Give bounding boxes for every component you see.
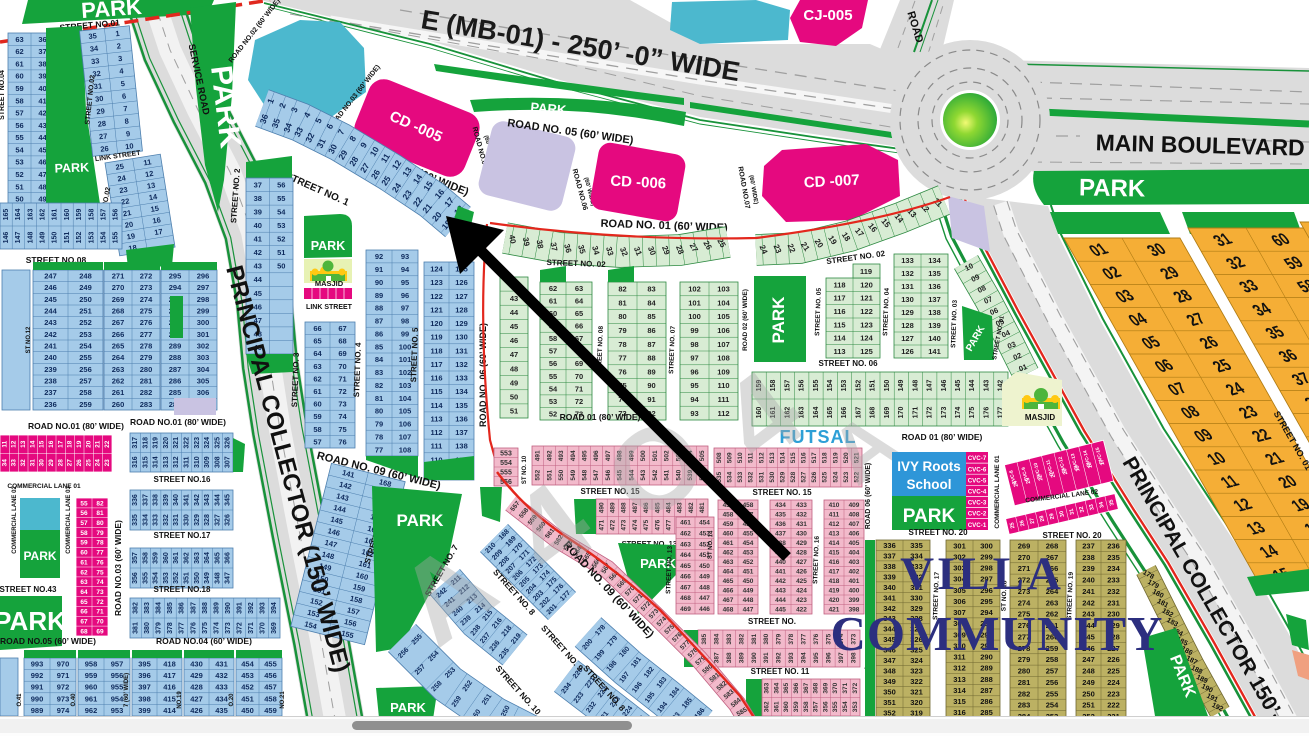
svg-text:224: 224 bbox=[1107, 678, 1120, 687]
svg-text:CD -007: CD -007 bbox=[803, 172, 860, 192]
svg-text:286: 286 bbox=[980, 697, 993, 706]
svg-text:11: 11 bbox=[143, 157, 152, 167]
svg-text:409: 409 bbox=[849, 502, 860, 509]
svg-text:320: 320 bbox=[163, 437, 170, 449]
svg-text:395: 395 bbox=[813, 652, 820, 663]
svg-text:436: 436 bbox=[775, 521, 786, 528]
svg-text:63: 63 bbox=[15, 35, 23, 44]
svg-text:264: 264 bbox=[112, 353, 125, 362]
svg-text:121: 121 bbox=[860, 294, 873, 303]
svg-text:20: 20 bbox=[124, 220, 134, 230]
svg-text:37: 37 bbox=[254, 181, 262, 190]
svg-text:424: 424 bbox=[796, 588, 807, 595]
svg-text:129: 129 bbox=[901, 308, 914, 317]
svg-text:53: 53 bbox=[549, 397, 557, 406]
svg-text:448: 448 bbox=[699, 584, 710, 591]
svg-text:971: 971 bbox=[57, 671, 70, 680]
svg-text:127: 127 bbox=[455, 292, 468, 301]
svg-text:144: 144 bbox=[969, 380, 976, 392]
svg-text:310: 310 bbox=[194, 456, 201, 468]
svg-text:65: 65 bbox=[575, 309, 583, 318]
svg-text:450: 450 bbox=[241, 706, 254, 715]
svg-text:176: 176 bbox=[984, 407, 991, 419]
svg-text:461: 461 bbox=[723, 540, 734, 547]
svg-text:237: 237 bbox=[44, 388, 57, 397]
svg-text:316: 316 bbox=[132, 456, 139, 468]
svg-text:136: 136 bbox=[455, 414, 468, 423]
svg-text:49: 49 bbox=[38, 195, 46, 204]
svg-text:88: 88 bbox=[647, 354, 655, 363]
svg-text:335: 335 bbox=[132, 514, 139, 526]
svg-text:104: 104 bbox=[399, 394, 412, 403]
svg-text:376: 376 bbox=[813, 633, 820, 644]
svg-text:77: 77 bbox=[96, 550, 104, 557]
svg-text:241: 241 bbox=[1082, 587, 1095, 596]
svg-text:74: 74 bbox=[338, 412, 347, 421]
svg-text:151: 151 bbox=[870, 380, 877, 392]
svg-text:240: 240 bbox=[44, 353, 57, 362]
svg-text:399: 399 bbox=[138, 706, 151, 715]
svg-text:270: 270 bbox=[112, 283, 125, 292]
svg-text:434: 434 bbox=[775, 502, 786, 509]
svg-text:138: 138 bbox=[928, 308, 941, 317]
svg-text:40: 40 bbox=[254, 221, 262, 230]
svg-text:268: 268 bbox=[112, 307, 125, 316]
svg-text:70: 70 bbox=[96, 619, 104, 626]
svg-text:349: 349 bbox=[883, 677, 896, 686]
svg-text:326: 326 bbox=[225, 514, 232, 526]
svg-text:105: 105 bbox=[717, 312, 730, 321]
svg-text:12: 12 bbox=[144, 169, 154, 179]
svg-text:303: 303 bbox=[197, 353, 210, 362]
svg-text:469: 469 bbox=[680, 606, 691, 613]
svg-text:462: 462 bbox=[723, 550, 734, 557]
svg-text:467: 467 bbox=[723, 597, 734, 604]
svg-text:80: 80 bbox=[375, 407, 383, 416]
svg-text:375: 375 bbox=[202, 622, 209, 634]
svg-text:365: 365 bbox=[214, 552, 221, 564]
svg-text:131: 131 bbox=[901, 282, 914, 291]
svg-text:336: 336 bbox=[883, 541, 896, 550]
svg-text:77: 77 bbox=[375, 445, 383, 454]
svg-text:403: 403 bbox=[849, 559, 860, 566]
svg-text:384: 384 bbox=[713, 633, 720, 644]
svg-text:124: 124 bbox=[860, 334, 873, 343]
svg-text:382: 382 bbox=[133, 602, 140, 614]
svg-text:356: 356 bbox=[132, 572, 139, 584]
svg-text:ROAD 01 (80’ WIDE): ROAD 01 (80’ WIDE) bbox=[902, 432, 983, 442]
svg-text:30: 30 bbox=[95, 94, 104, 104]
svg-text:450: 450 bbox=[699, 563, 710, 570]
svg-text:105: 105 bbox=[399, 407, 412, 416]
svg-text:388: 388 bbox=[726, 652, 733, 663]
svg-text:524: 524 bbox=[832, 471, 839, 482]
svg-text:21: 21 bbox=[122, 208, 132, 218]
svg-text:308: 308 bbox=[214, 456, 221, 468]
svg-text:79: 79 bbox=[618, 326, 626, 335]
svg-text:386: 386 bbox=[179, 602, 186, 614]
svg-text:459: 459 bbox=[723, 521, 734, 528]
svg-text:362: 362 bbox=[184, 552, 191, 564]
svg-text:415: 415 bbox=[829, 550, 840, 557]
svg-text:ROAD 02 (60’ WIDE): ROAD 02 (60’ WIDE) bbox=[742, 289, 749, 351]
svg-text:433: 433 bbox=[215, 683, 228, 692]
svg-text:359: 359 bbox=[793, 701, 800, 712]
svg-text:59: 59 bbox=[313, 412, 321, 421]
svg-text:29: 29 bbox=[48, 459, 55, 467]
svg-text:19: 19 bbox=[126, 231, 136, 241]
svg-text:261: 261 bbox=[112, 388, 125, 397]
svg-text:309: 309 bbox=[204, 456, 211, 468]
svg-text:32: 32 bbox=[20, 459, 27, 467]
svg-text:265: 265 bbox=[112, 342, 125, 351]
svg-text:70: 70 bbox=[575, 372, 583, 381]
svg-text:62: 62 bbox=[549, 284, 557, 293]
svg-text:337: 337 bbox=[883, 551, 896, 560]
svg-text:339: 339 bbox=[883, 572, 896, 581]
svg-text:326: 326 bbox=[225, 437, 232, 449]
svg-text:28: 28 bbox=[57, 459, 64, 467]
svg-text:44: 44 bbox=[254, 275, 263, 284]
svg-text:38: 38 bbox=[254, 194, 262, 203]
svg-text:87: 87 bbox=[375, 317, 383, 326]
svg-text:13: 13 bbox=[146, 181, 156, 191]
svg-text:391: 391 bbox=[763, 652, 770, 663]
svg-text:278: 278 bbox=[140, 342, 153, 351]
svg-text:989: 989 bbox=[31, 706, 44, 715]
svg-text:117: 117 bbox=[833, 294, 845, 303]
svg-text:383: 383 bbox=[144, 602, 151, 614]
svg-text:281: 281 bbox=[140, 377, 153, 386]
svg-text:61: 61 bbox=[313, 387, 321, 396]
svg-text:67: 67 bbox=[80, 619, 88, 626]
svg-text:135: 135 bbox=[455, 401, 468, 410]
svg-text:432: 432 bbox=[796, 512, 807, 519]
svg-text:956: 956 bbox=[111, 671, 124, 680]
svg-text:34: 34 bbox=[1, 459, 8, 467]
svg-text:106: 106 bbox=[399, 420, 412, 429]
svg-text:56: 56 bbox=[15, 121, 23, 130]
svg-text:82: 82 bbox=[96, 500, 104, 507]
svg-text:340: 340 bbox=[173, 494, 180, 506]
svg-text:58: 58 bbox=[313, 425, 321, 434]
svg-text:239: 239 bbox=[1082, 564, 1095, 573]
svg-text:143: 143 bbox=[984, 380, 991, 392]
svg-text:123: 123 bbox=[430, 278, 443, 287]
svg-text:ST NO. 14: ST NO. 14 bbox=[708, 530, 715, 559]
svg-text:46: 46 bbox=[510, 336, 518, 345]
svg-text:458: 458 bbox=[723, 512, 734, 519]
svg-text:302: 302 bbox=[197, 342, 210, 351]
svg-text:418: 418 bbox=[163, 660, 176, 669]
svg-text:52: 52 bbox=[277, 235, 285, 244]
svg-text:66: 66 bbox=[313, 324, 321, 333]
svg-text:128: 128 bbox=[455, 305, 468, 314]
svg-text:276: 276 bbox=[140, 318, 153, 327]
svg-text:132: 132 bbox=[455, 360, 468, 369]
svg-text:133: 133 bbox=[901, 256, 914, 265]
svg-text:325: 325 bbox=[214, 437, 221, 449]
svg-text:64: 64 bbox=[313, 349, 322, 358]
svg-text:363: 363 bbox=[764, 682, 771, 693]
svg-text:38: 38 bbox=[38, 59, 46, 68]
svg-text:553: 553 bbox=[500, 450, 512, 457]
svg-text:150: 150 bbox=[52, 232, 59, 244]
svg-text:321: 321 bbox=[173, 437, 180, 449]
svg-text:31: 31 bbox=[29, 459, 36, 467]
svg-text:21: 21 bbox=[95, 440, 102, 448]
svg-text:355: 355 bbox=[142, 572, 149, 584]
svg-text:82: 82 bbox=[618, 285, 626, 294]
svg-text:331: 331 bbox=[173, 514, 180, 526]
svg-text:147: 147 bbox=[15, 232, 22, 244]
svg-text:343: 343 bbox=[204, 494, 211, 506]
svg-text:348: 348 bbox=[214, 572, 221, 584]
svg-text:154: 154 bbox=[827, 380, 834, 392]
svg-text:379: 379 bbox=[156, 622, 163, 634]
svg-text:124: 124 bbox=[430, 265, 443, 274]
svg-text:428: 428 bbox=[190, 683, 203, 692]
svg-text:MAIN BOULEVARD: MAIN BOULEVARD bbox=[1095, 129, 1305, 160]
svg-text:44: 44 bbox=[510, 308, 519, 317]
svg-text:150: 150 bbox=[884, 380, 891, 392]
svg-text:STREET NO. 5: STREET NO. 5 bbox=[409, 327, 420, 383]
svg-text:76: 76 bbox=[338, 437, 346, 446]
svg-text:17: 17 bbox=[154, 227, 164, 237]
svg-text:120: 120 bbox=[860, 280, 873, 289]
svg-text:247: 247 bbox=[44, 272, 57, 281]
svg-text:338: 338 bbox=[883, 562, 896, 571]
svg-text:71: 71 bbox=[575, 384, 583, 393]
svg-text:474: 474 bbox=[632, 519, 639, 530]
svg-text:462: 462 bbox=[680, 531, 691, 538]
svg-text:123: 123 bbox=[860, 320, 873, 329]
svg-text:317: 317 bbox=[132, 437, 139, 449]
svg-text:392: 392 bbox=[248, 602, 255, 614]
svg-text:427: 427 bbox=[796, 559, 807, 566]
svg-text:254: 254 bbox=[1046, 701, 1059, 710]
svg-text:411: 411 bbox=[829, 512, 840, 519]
svg-text:240: 240 bbox=[1082, 576, 1095, 585]
svg-text:371: 371 bbox=[248, 622, 255, 634]
svg-text:354: 354 bbox=[153, 572, 160, 584]
svg-text:50: 50 bbox=[277, 262, 285, 271]
svg-text:STREET NO. 3: STREET NO. 3 bbox=[290, 352, 301, 408]
svg-text:114: 114 bbox=[430, 401, 443, 410]
svg-text:27: 27 bbox=[99, 131, 108, 141]
svg-text:509: 509 bbox=[727, 452, 734, 463]
svg-text:149: 149 bbox=[40, 232, 47, 244]
svg-text:378: 378 bbox=[167, 622, 174, 634]
svg-text:274: 274 bbox=[140, 295, 153, 304]
svg-text:62: 62 bbox=[80, 569, 88, 576]
svg-text:957: 957 bbox=[111, 660, 124, 669]
svg-text:93: 93 bbox=[690, 409, 698, 418]
svg-text:494: 494 bbox=[570, 450, 577, 461]
svg-text:433: 433 bbox=[796, 502, 807, 509]
svg-text:56: 56 bbox=[80, 510, 88, 517]
svg-text:39: 39 bbox=[38, 72, 46, 81]
svg-text:322: 322 bbox=[910, 677, 923, 686]
svg-text:285: 285 bbox=[169, 388, 182, 397]
svg-text:146: 146 bbox=[3, 232, 10, 244]
svg-text:100: 100 bbox=[688, 312, 701, 321]
svg-text:250: 250 bbox=[79, 295, 92, 304]
svg-text:ROAD NO.04 (60’ WIDE): ROAD NO.04 (60’ WIDE) bbox=[156, 636, 252, 646]
svg-text:300: 300 bbox=[197, 318, 210, 327]
svg-text:381: 381 bbox=[133, 622, 140, 634]
svg-text:427: 427 bbox=[190, 694, 203, 703]
svg-text:955: 955 bbox=[111, 683, 124, 692]
svg-text:COMMERCIAL LANE 02: COMMERCIAL LANE 02 bbox=[12, 486, 18, 554]
svg-text:163: 163 bbox=[27, 209, 34, 221]
svg-text:238: 238 bbox=[44, 377, 57, 386]
svg-text:342: 342 bbox=[194, 494, 201, 506]
svg-text:493: 493 bbox=[558, 450, 565, 461]
svg-text:366: 366 bbox=[225, 552, 232, 564]
svg-text:153: 153 bbox=[841, 380, 848, 392]
svg-text:PARK: PARK bbox=[0, 606, 66, 636]
svg-text:158: 158 bbox=[88, 209, 95, 221]
svg-text:334: 334 bbox=[142, 514, 149, 526]
svg-text:280: 280 bbox=[140, 365, 153, 374]
svg-text:65: 65 bbox=[313, 337, 321, 346]
svg-text:360: 360 bbox=[163, 552, 170, 564]
svg-text:51: 51 bbox=[15, 182, 23, 191]
svg-text:534: 534 bbox=[727, 471, 734, 482]
svg-text:233: 233 bbox=[1107, 576, 1120, 585]
svg-text:349: 349 bbox=[204, 572, 211, 584]
svg-text:CJ-005: CJ-005 bbox=[803, 7, 852, 24]
svg-text:555: 555 bbox=[500, 469, 512, 476]
svg-text:89: 89 bbox=[647, 367, 655, 376]
svg-text:314: 314 bbox=[953, 686, 966, 695]
svg-text:288: 288 bbox=[169, 353, 182, 362]
svg-text:73: 73 bbox=[96, 589, 104, 596]
svg-text:471: 471 bbox=[598, 519, 605, 530]
svg-text:43: 43 bbox=[38, 121, 46, 130]
svg-text:466: 466 bbox=[680, 574, 691, 581]
svg-text:118: 118 bbox=[833, 280, 845, 289]
svg-text:283: 283 bbox=[1018, 701, 1031, 710]
svg-text:992: 992 bbox=[31, 671, 44, 680]
svg-text:449: 449 bbox=[743, 588, 754, 595]
svg-text:333: 333 bbox=[153, 514, 160, 526]
svg-text:425: 425 bbox=[796, 578, 807, 585]
svg-text:71: 71 bbox=[96, 609, 104, 616]
svg-text:O.40: O.40 bbox=[71, 693, 77, 707]
svg-text:MASJID: MASJID bbox=[1025, 413, 1055, 422]
svg-text:252: 252 bbox=[79, 318, 92, 327]
svg-text:77: 77 bbox=[618, 354, 626, 363]
svg-text:990: 990 bbox=[31, 694, 44, 703]
svg-text:347: 347 bbox=[225, 572, 232, 584]
svg-text:382: 382 bbox=[738, 633, 745, 644]
svg-text:394: 394 bbox=[271, 602, 278, 614]
svg-text:389: 389 bbox=[738, 652, 745, 663]
svg-text:453: 453 bbox=[241, 671, 254, 680]
svg-text:422: 422 bbox=[796, 607, 807, 614]
svg-text:137: 137 bbox=[455, 428, 468, 437]
svg-text:90: 90 bbox=[375, 278, 383, 287]
svg-text:298: 298 bbox=[197, 295, 210, 304]
svg-text:420: 420 bbox=[829, 597, 840, 604]
svg-text:391: 391 bbox=[236, 602, 243, 614]
svg-text:17: 17 bbox=[57, 440, 64, 448]
svg-text:128: 128 bbox=[901, 321, 914, 330]
svg-text:PARK: PARK bbox=[1079, 174, 1146, 202]
svg-text:448: 448 bbox=[743, 597, 754, 604]
svg-text:360: 360 bbox=[783, 701, 790, 712]
svg-text:107: 107 bbox=[399, 432, 412, 441]
svg-text:973: 973 bbox=[57, 694, 70, 703]
svg-text:369: 369 bbox=[822, 682, 829, 693]
svg-text:222: 222 bbox=[1107, 701, 1120, 710]
svg-text:22: 22 bbox=[104, 440, 111, 448]
svg-text:82: 82 bbox=[375, 381, 383, 390]
svg-text:56: 56 bbox=[549, 359, 557, 368]
svg-text:173: 173 bbox=[941, 407, 948, 419]
svg-text:69: 69 bbox=[338, 349, 346, 358]
svg-text:129: 129 bbox=[455, 319, 468, 328]
svg-text:451: 451 bbox=[241, 694, 254, 703]
svg-text:318: 318 bbox=[142, 437, 149, 449]
svg-text:434: 434 bbox=[215, 694, 228, 703]
svg-text:429: 429 bbox=[190, 671, 203, 680]
svg-text:410: 410 bbox=[829, 502, 840, 509]
svg-text:363: 363 bbox=[194, 552, 201, 564]
svg-text:STREET NO.18: STREET NO.18 bbox=[154, 585, 211, 594]
svg-text:24: 24 bbox=[95, 459, 102, 467]
svg-text:172: 172 bbox=[927, 407, 934, 419]
svg-text:972: 972 bbox=[57, 683, 70, 692]
svg-text:251: 251 bbox=[1082, 701, 1095, 710]
svg-text:45: 45 bbox=[510, 322, 518, 331]
svg-text:341: 341 bbox=[184, 494, 191, 506]
svg-text:405: 405 bbox=[849, 540, 860, 547]
svg-text:288: 288 bbox=[980, 675, 993, 684]
svg-text:430: 430 bbox=[796, 531, 807, 538]
svg-text:75: 75 bbox=[338, 425, 346, 434]
svg-text:455: 455 bbox=[264, 660, 277, 669]
svg-text:374: 374 bbox=[213, 622, 220, 634]
svg-text:169: 169 bbox=[884, 407, 891, 419]
svg-text:54: 54 bbox=[15, 145, 24, 154]
svg-text:98: 98 bbox=[401, 317, 409, 326]
svg-text:47: 47 bbox=[510, 350, 518, 359]
svg-text:407: 407 bbox=[849, 521, 860, 528]
svg-text:467: 467 bbox=[680, 584, 691, 591]
svg-text:26: 26 bbox=[76, 459, 83, 467]
svg-text:533: 533 bbox=[737, 471, 744, 482]
svg-text:95: 95 bbox=[401, 278, 409, 287]
svg-text:232: 232 bbox=[1107, 587, 1120, 596]
svg-text:356: 356 bbox=[822, 701, 829, 712]
svg-text:455: 455 bbox=[743, 531, 754, 538]
svg-text:162: 162 bbox=[40, 209, 47, 221]
svg-text:463: 463 bbox=[723, 559, 734, 566]
svg-text:254: 254 bbox=[79, 342, 92, 351]
svg-text:225: 225 bbox=[1107, 667, 1120, 676]
svg-text:223: 223 bbox=[1107, 689, 1120, 698]
svg-text:397: 397 bbox=[138, 683, 151, 692]
svg-text:80: 80 bbox=[618, 312, 626, 321]
svg-text:417: 417 bbox=[829, 569, 840, 576]
svg-text:140: 140 bbox=[928, 334, 941, 343]
svg-text:81: 81 bbox=[96, 510, 104, 517]
svg-text:337: 337 bbox=[142, 494, 149, 506]
svg-text:136: 136 bbox=[928, 282, 941, 291]
